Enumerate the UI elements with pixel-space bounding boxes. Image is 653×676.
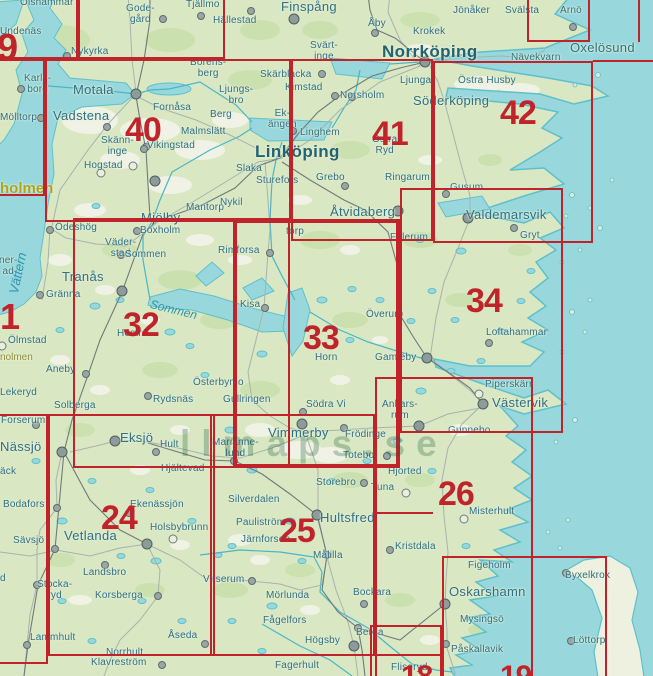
sheet-number: 26 [438, 477, 474, 511]
sheet-number: 32 [123, 308, 159, 342]
edge-partial-label: ner- ad [0, 256, 18, 277]
town-dot [158, 661, 166, 669]
sheet-number: 1 [0, 299, 19, 335]
town-label: Jönåker [453, 6, 490, 17]
map-canvas[interactable]: OlshammarUndenäsGode- gårdTjällmoHällest… [0, 0, 653, 676]
town-label: Åby [368, 19, 386, 30]
town-label: Fagerhult [275, 661, 319, 672]
sheet-rect[interactable] [45, 59, 291, 222]
sheet-edge-segment [375, 654, 442, 656]
sheet-number: 24 [101, 501, 137, 535]
sheet-number: 18 [401, 662, 432, 676]
town-label: Finspång [281, 0, 337, 14]
town-dot [247, 7, 255, 15]
town-label: Klavreström [91, 658, 147, 669]
sheet-number: 9 [0, 29, 17, 67]
sheet-rect[interactable] [0, 59, 45, 196]
town-label: Ölmstad [8, 336, 47, 347]
town-dot [371, 29, 379, 37]
sheet-edge-segment [638, 0, 640, 42]
town-label: Aneby [46, 365, 75, 376]
town-label: Oxelösund [570, 41, 635, 55]
town-label: Lekeryd [0, 388, 37, 399]
town-label: Krokek [413, 27, 445, 38]
sheet-number: 40 [125, 113, 161, 147]
sheet-rect[interactable] [78, 0, 225, 59]
sheet-edge-segment [373, 512, 433, 514]
sheet-rect[interactable] [527, 0, 590, 42]
town-dot [36, 291, 44, 299]
series-sheet-label: nolmen [0, 352, 33, 363]
sheet-rect[interactable] [442, 556, 607, 676]
sheet-number: 41 [372, 117, 408, 151]
town-dot [289, 14, 300, 25]
sheet-edge-segment [593, 60, 653, 62]
sheet-number: 42 [500, 96, 536, 130]
sheet-number: 25 [279, 514, 315, 548]
town-dot [46, 226, 54, 234]
sheet-rect[interactable] [0, 414, 48, 664]
watermark: llmaps.se [180, 423, 448, 465]
sheet-number: 34 [466, 284, 502, 318]
sheet-number: 19 [500, 662, 531, 676]
sheet-number: 33 [303, 321, 339, 355]
